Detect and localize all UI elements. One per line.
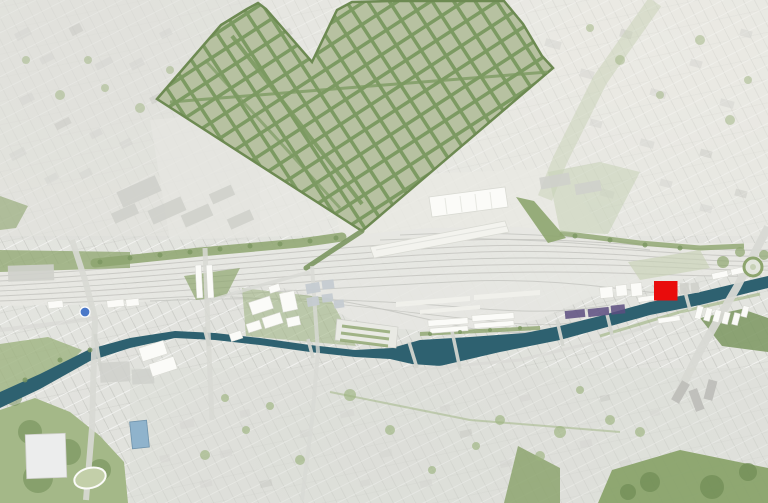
white-buildings-17	[630, 283, 642, 297]
tree-dots-17	[458, 330, 462, 334]
gray-buildings-7	[99, 361, 130, 383]
green-areas-38	[535, 451, 545, 461]
gray-buildings-14	[680, 283, 690, 295]
tree-dots-14	[58, 358, 63, 363]
green-areas-43	[221, 394, 229, 402]
tree-dots-0	[98, 260, 103, 265]
green-areas-21	[620, 484, 636, 500]
green-areas-44	[200, 450, 210, 460]
green-areas-18	[640, 472, 660, 492]
green-areas-45	[55, 90, 65, 100]
gray-buildings-20	[333, 299, 344, 308]
green-areas-27	[717, 256, 729, 268]
masterplan-overlay	[0, 0, 768, 503]
stadium-building	[25, 433, 67, 478]
green-areas-30	[344, 389, 356, 401]
map-canvas[interactable]	[0, 0, 768, 503]
green-areas-54	[744, 76, 752, 84]
roundabout-center	[750, 264, 756, 270]
green-areas-32	[295, 455, 305, 465]
green-areas-42	[266, 402, 274, 410]
green-areas-40	[635, 427, 645, 437]
green-areas-50	[656, 91, 664, 99]
gray-buildings-19	[321, 293, 333, 302]
tree-dots-5	[248, 244, 253, 249]
gray-buildings-15	[691, 283, 700, 294]
tree-dots-16	[428, 332, 432, 336]
green-areas-41	[242, 426, 250, 434]
tree-dots-10	[608, 238, 613, 243]
tree-dots-4	[218, 247, 223, 252]
green-areas-46	[101, 84, 109, 92]
green-areas-35	[554, 426, 566, 438]
green-areas-47	[84, 56, 92, 64]
tree-dots-15	[23, 378, 28, 383]
tree-dots-6	[278, 242, 283, 247]
white-buildings-31	[107, 299, 125, 308]
green-areas-34	[495, 415, 505, 425]
green-areas-28	[735, 247, 745, 257]
tree-dots-8	[334, 236, 339, 241]
white-buildings-16	[616, 285, 628, 297]
tree-dots-18	[488, 328, 492, 332]
green-areas-33	[428, 466, 436, 474]
green-areas-52	[586, 24, 594, 32]
green-areas-36	[605, 415, 615, 425]
green-areas-20	[739, 463, 757, 481]
tree-dots-7	[308, 239, 313, 244]
gray-buildings-17	[321, 279, 334, 290]
green-areas-51	[695, 35, 705, 45]
swimming-pool	[130, 420, 150, 449]
tree-dots-3	[188, 250, 193, 255]
green-areas-48	[135, 103, 145, 113]
tree-dots-12	[678, 246, 683, 251]
tree-dots-11	[643, 243, 648, 248]
pond-roundabout	[80, 307, 90, 317]
green-areas-55	[22, 56, 30, 64]
white-buildings-15	[600, 286, 614, 298]
white-buildings-30	[48, 300, 64, 309]
gray-buildings-6	[8, 264, 55, 282]
purple-buildings-2	[611, 304, 626, 314]
white-buildings-32	[126, 298, 140, 306]
tree-dots-1	[128, 256, 133, 261]
green-areas-37	[472, 442, 480, 450]
green-areas-56	[166, 66, 174, 74]
green-areas-53	[725, 115, 735, 125]
tree-dots-19	[518, 326, 522, 330]
tree-dots-2	[158, 253, 163, 258]
tree-dots-9	[573, 234, 578, 239]
green-areas-39	[576, 386, 584, 394]
red-parcel-highlight[interactable]	[654, 281, 678, 301]
green-areas-49	[615, 55, 625, 65]
tree-dots-13	[88, 348, 93, 353]
green-areas-19	[700, 475, 724, 499]
green-areas-31	[385, 425, 395, 435]
roads-5	[0, 318, 96, 330]
